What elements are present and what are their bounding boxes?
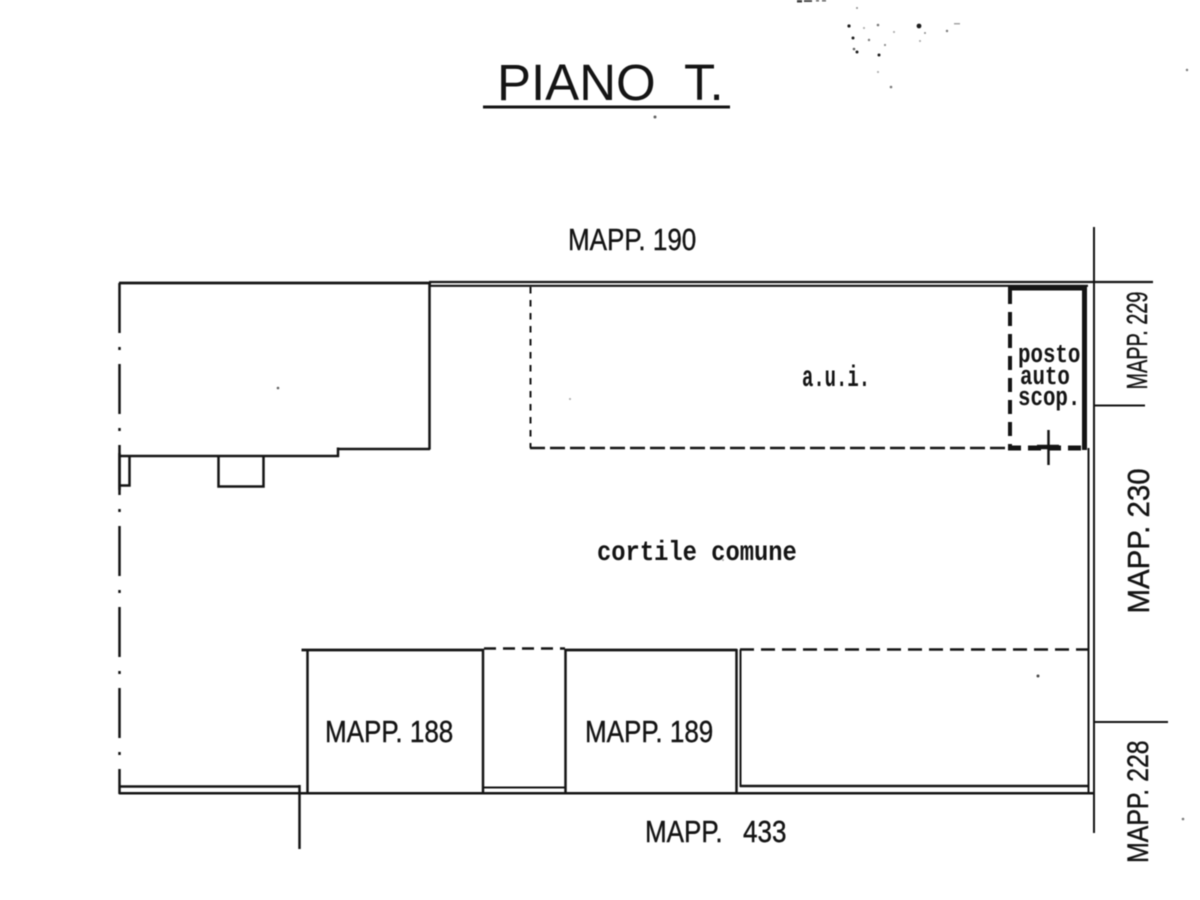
- svg-text:MAPP. 230: MAPP. 230: [1122, 468, 1156, 613]
- svg-text:433: 433: [743, 815, 786, 850]
- svg-text:MAPP. 228: MAPP. 228: [1121, 740, 1155, 863]
- svg-text:MAPP. 190: MAPP. 190: [568, 223, 696, 258]
- svg-text:MAPP. 229: MAPP. 229: [1122, 292, 1154, 390]
- svg-text:T.: T.: [684, 54, 724, 111]
- svg-text:cortile comune: cortile comune: [597, 536, 797, 568]
- svg-text:PIANO: PIANO: [497, 54, 656, 111]
- svg-text:scop.: scop.: [1018, 384, 1080, 414]
- svg-text:MAPP.: MAPP.: [645, 815, 723, 850]
- svg-text:a.u.i.: a.u.i.: [802, 361, 870, 396]
- svg-text:MAPP. 188: MAPP. 188: [325, 715, 453, 750]
- svg-text:MAPP. 189: MAPP. 189: [585, 715, 713, 750]
